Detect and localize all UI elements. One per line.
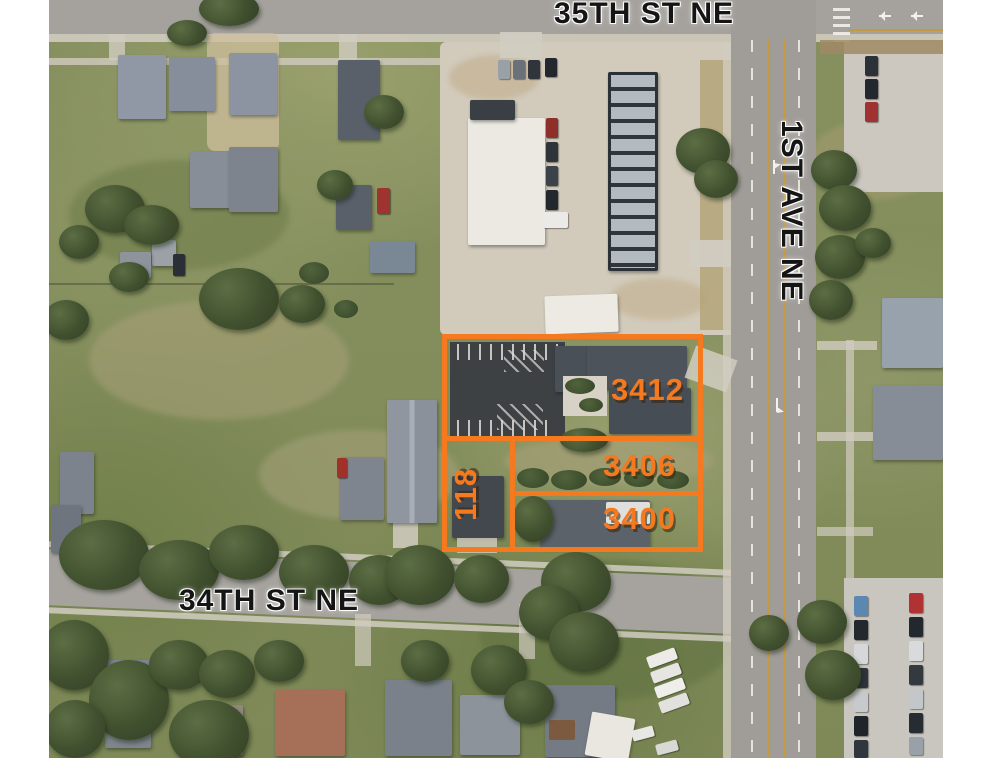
bush — [334, 300, 358, 318]
tree — [254, 640, 304, 682]
parking-lot-ne — [844, 42, 943, 192]
driveway — [817, 432, 873, 441]
driveway — [817, 341, 877, 350]
parcel-label-3406: 3406 — [603, 448, 676, 484]
turn-arrow-head — [875, 11, 885, 21]
tree — [504, 680, 554, 724]
satellite-imagery: 3412 3406 3400 118 35TH ST NE 1ST AVE NE… — [49, 0, 943, 758]
tree — [385, 545, 455, 605]
house — [190, 152, 231, 208]
parked-car — [546, 142, 558, 162]
tree — [805, 650, 861, 700]
parked-car — [546, 190, 558, 210]
parked-car — [909, 665, 923, 685]
commercial-building-white — [468, 118, 545, 245]
house — [385, 680, 452, 756]
house — [873, 385, 943, 460]
house — [229, 53, 277, 115]
parked-car — [655, 739, 679, 755]
parked-car — [909, 617, 923, 637]
garage-slate — [370, 241, 415, 273]
driveway — [355, 614, 371, 666]
parked-car — [909, 689, 923, 709]
tree — [124, 205, 179, 245]
parked-car — [909, 713, 923, 733]
parked-car — [854, 596, 868, 616]
tree — [167, 20, 207, 46]
tree — [364, 95, 404, 129]
tree — [819, 185, 871, 231]
parked-car — [545, 58, 557, 77]
tree — [209, 525, 279, 580]
parked-car — [854, 716, 868, 736]
parked-car — [854, 620, 868, 640]
tree — [59, 225, 99, 259]
aerial-parcel-map-image: 3412 3406 3400 118 35TH ST NE 1ST AVE NE… — [0, 0, 994, 768]
parked-car — [909, 737, 923, 755]
parcel-label-3412: 3412 — [611, 372, 684, 408]
parked-car-red — [337, 458, 347, 478]
tree — [694, 160, 738, 198]
house — [169, 57, 215, 111]
house — [882, 298, 943, 368]
parked-car — [498, 60, 510, 79]
parked-car — [546, 166, 558, 186]
parked-van-white — [543, 212, 568, 228]
tree — [317, 170, 353, 200]
street-label-1st-ave: 1ST AVE NE — [774, 120, 808, 302]
house — [118, 55, 166, 119]
commercial-building-roof-unit — [470, 100, 515, 120]
white-building-tilted — [585, 712, 636, 758]
tree — [59, 520, 149, 590]
tree — [401, 640, 449, 682]
parked-car — [909, 641, 923, 661]
driveway-from-35th — [500, 32, 542, 58]
house — [229, 147, 278, 212]
parked-car-red — [865, 102, 878, 122]
driveway — [817, 527, 873, 536]
pavement-dirt — [449, 55, 539, 100]
parcel-label-3400: 3400 — [603, 501, 676, 537]
center-line-yellow-35th — [849, 29, 943, 31]
small-white-building — [544, 294, 618, 335]
dirt-strip — [820, 40, 943, 54]
tree — [199, 268, 279, 330]
parked-car — [528, 60, 540, 79]
parked-car — [173, 254, 185, 276]
street-label-34th: 34TH ST NE — [179, 584, 359, 618]
turn-arrow-head — [907, 11, 917, 21]
tree — [279, 285, 325, 323]
tree — [49, 300, 89, 340]
parked-car — [513, 60, 525, 79]
crosswalk — [833, 8, 850, 42]
bush — [299, 262, 329, 284]
tree — [49, 700, 105, 758]
parcel-divider-horizontal-2 — [510, 491, 698, 496]
street-label-35th: 35TH ST NE — [554, 0, 734, 31]
parked-car — [854, 692, 868, 712]
tree — [855, 228, 891, 258]
tree — [549, 612, 619, 672]
parked-car — [865, 56, 878, 76]
parked-car — [865, 79, 878, 99]
tree — [454, 555, 509, 603]
tree — [797, 600, 847, 644]
tree — [749, 615, 789, 651]
tree — [809, 280, 853, 320]
parked-car — [854, 740, 868, 758]
tree — [199, 650, 255, 698]
parked-car — [546, 118, 558, 138]
house-terracotta — [275, 690, 345, 756]
house-porch — [549, 720, 575, 740]
parked-truck-red — [377, 188, 390, 214]
apartment-building — [387, 400, 437, 523]
tree — [811, 150, 857, 190]
bus-canopy-structure — [608, 72, 658, 271]
lane-line-dashed — [751, 40, 753, 758]
tree — [109, 262, 149, 292]
parked-car-red — [909, 593, 923, 613]
parcel-label-118: 118 — [448, 468, 484, 521]
parked-car — [631, 725, 655, 741]
pavement-dirt — [609, 278, 709, 320]
parcel-divider-horizontal-1 — [447, 436, 698, 441]
